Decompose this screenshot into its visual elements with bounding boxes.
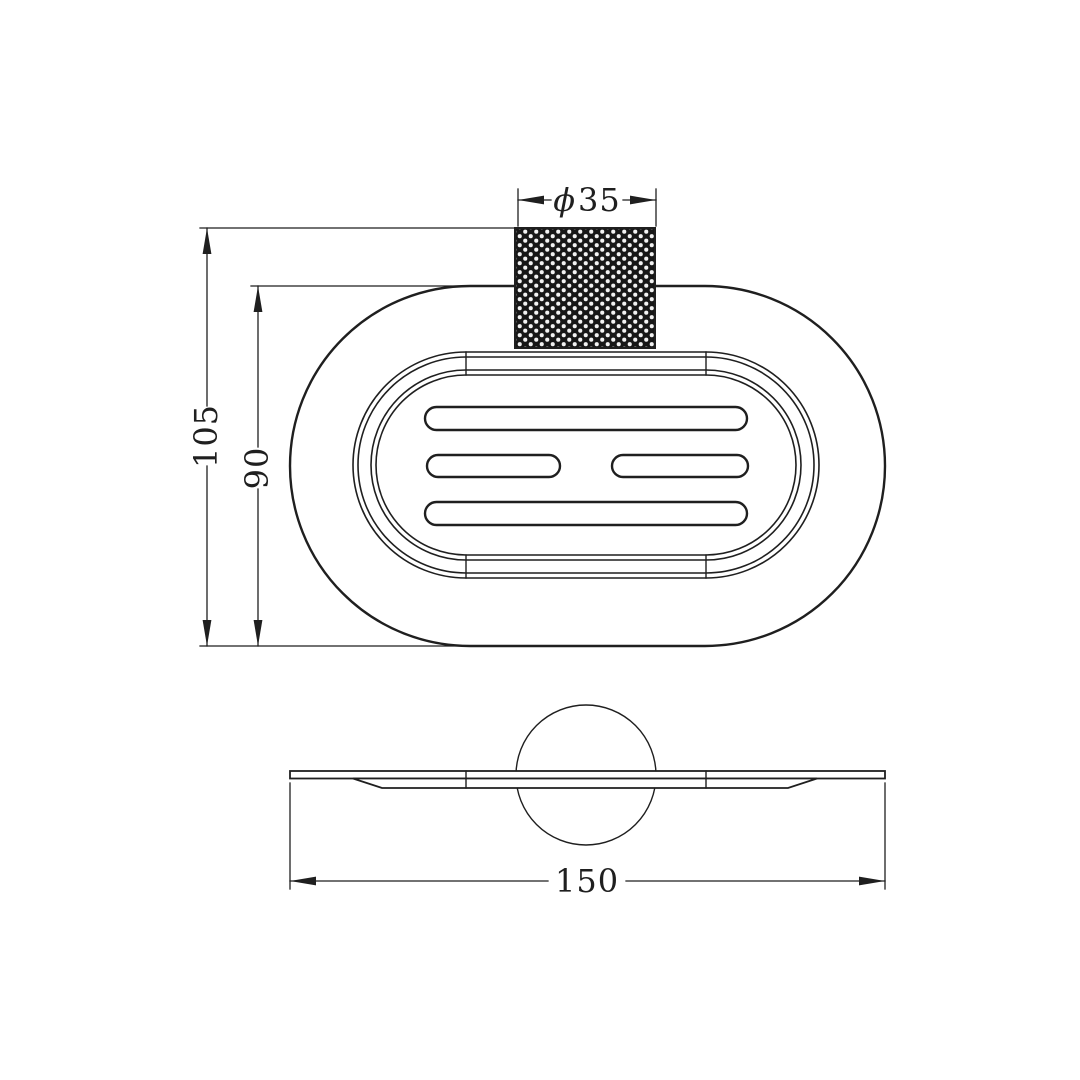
- dish-underside-profile: [353, 779, 817, 789]
- drain-slot-middle-right: [612, 455, 748, 477]
- drain-slot-top: [425, 407, 747, 430]
- drain-slot-middle-left: [427, 455, 560, 477]
- technical-drawing-page: 105 90 ϕ35: [0, 0, 1080, 1080]
- diameter-symbol: ϕ: [553, 181, 576, 219]
- diameter-value: 35: [578, 181, 621, 219]
- dimension-label-post-diameter: ϕ35: [553, 181, 621, 219]
- dimension-label-overall-width: 150: [555, 862, 619, 900]
- dimension-label-body-height: 90: [238, 447, 276, 490]
- plate-profile: [290, 771, 885, 779]
- knurled-post: [515, 228, 655, 348]
- technical-drawing-canvas: 105 90 ϕ35: [0, 0, 1080, 1080]
- dimension-label-overall-height: 105: [187, 404, 225, 468]
- drain-slot-bottom: [425, 502, 747, 525]
